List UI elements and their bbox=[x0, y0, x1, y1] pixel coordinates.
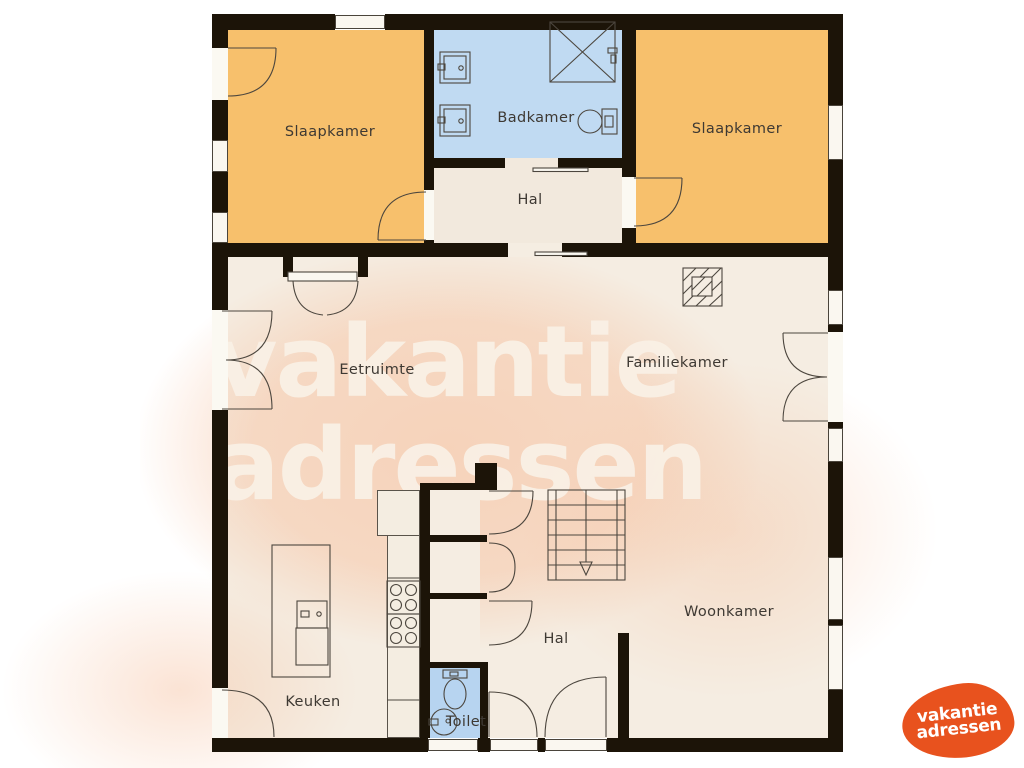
closet-double-doors bbox=[288, 272, 358, 315]
label-hal-upper: Hal bbox=[517, 192, 542, 208]
label-slaapkamer-right: Slaapkamer bbox=[692, 121, 782, 137]
label-keuken: Keuken bbox=[285, 694, 340, 710]
fireplace bbox=[683, 268, 722, 306]
toilet-wc bbox=[443, 670, 467, 709]
label-toilet: Toilet bbox=[446, 714, 486, 730]
kitchen-island bbox=[272, 545, 330, 677]
bathroom-sink bbox=[438, 52, 470, 83]
stair-direction-arrow bbox=[580, 562, 592, 575]
floorplan-canvas: vakantie adressen bbox=[0, 0, 1024, 768]
stove bbox=[387, 581, 420, 647]
door-swing-arcs bbox=[222, 48, 828, 737]
label-hal-lower: Hal bbox=[543, 631, 568, 647]
bathroom-sink bbox=[438, 105, 470, 136]
label-woonkamer: Woonkamer bbox=[684, 604, 774, 620]
label-badkamer: Badkamer bbox=[497, 110, 574, 126]
bathroom-wc bbox=[578, 109, 617, 134]
label-eetruimte: Eetruimte bbox=[339, 362, 414, 378]
shower bbox=[550, 22, 617, 82]
label-familiekamer: Familiekamer bbox=[626, 355, 728, 371]
label-slaapkamer-left: Slaapkamer bbox=[285, 124, 375, 140]
staircase bbox=[548, 490, 625, 580]
sliding-door-rails bbox=[533, 168, 588, 256]
counter-divider-lines bbox=[387, 578, 420, 700]
